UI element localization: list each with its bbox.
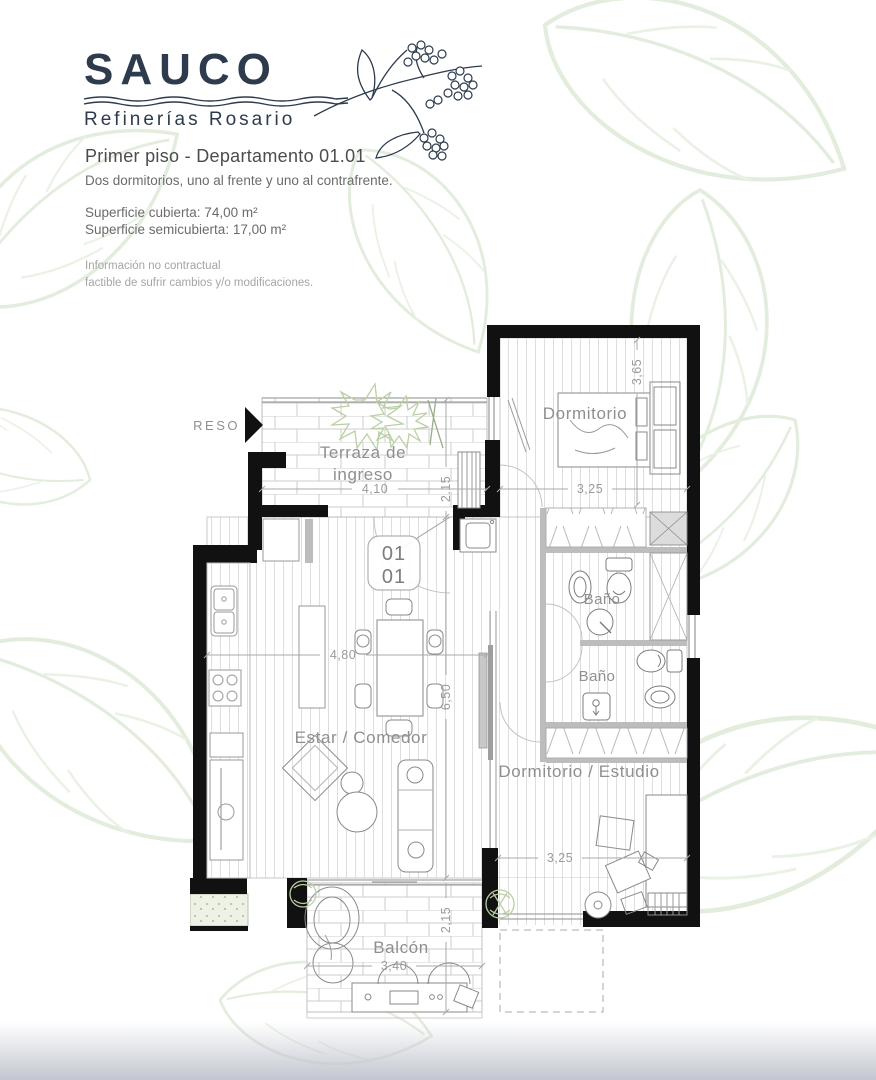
brand-logo: SAUCO Refinerías Rosario: [84, 48, 444, 131]
entry-label: INGRESO: [190, 418, 240, 433]
brochure-page: SAUCO Refinerías Rosario: [0, 0, 876, 1080]
dim-dorm-depth: 3,65: [630, 359, 644, 385]
dim-estar-depth: 6,50: [439, 684, 453, 710]
dim-estar-width: 4,80: [330, 648, 356, 662]
disclaimer-line-2: factible de sufrir cambios y/o modificac…: [85, 275, 313, 292]
unit-badge: 01 01: [368, 536, 420, 590]
entry-marker: INGRESO: [190, 407, 263, 443]
dim-terraza-depth: 2,15: [439, 476, 453, 502]
unit-header: Primer piso - Departamento 01.01 Dos dor…: [85, 146, 393, 188]
dim-terraza-width: 4,10: [362, 482, 388, 496]
dim-dorm2-width: 3,25: [547, 851, 573, 865]
room-label-dormitorio-estudio: Dormitorio / Estudio: [498, 762, 659, 781]
room-label-dormitorio: Dormitorio: [543, 404, 627, 423]
unit-number-top: 01: [382, 543, 406, 565]
surface-semicovered: Superficie semicubierta: 17,00 m²: [85, 222, 286, 237]
room-label-bano-1: Baño: [584, 591, 621, 608]
footer-gradient: [0, 1022, 876, 1080]
surface-info: Superficie cubierta: 74,00 m² Superficie…: [85, 203, 286, 237]
disclaimer-line-1: Información no contractual: [85, 258, 313, 275]
unit-number-bottom: 01: [382, 566, 406, 588]
floor-plan: 4,10 4,80 3,25 3,25 3,40 2,15 6,50 2,15 …: [190, 320, 702, 1020]
dim-balcon-width: 3,40: [381, 959, 407, 973]
surface-covered: Superficie cubierta: 74,00 m²: [85, 205, 286, 220]
dim-balcon-depth: 2,15: [439, 907, 453, 933]
page-title: Primer piso - Departamento 01.01: [85, 146, 393, 167]
room-label-terraza-2: ingreso: [333, 465, 393, 484]
entry-arrow-icon: [245, 407, 263, 443]
room-label-estar-comedor: Estar / Comedor: [295, 728, 428, 747]
disclaimer: Información no contractual factible de s…: [85, 258, 313, 291]
room-label-balcon: Balcón: [373, 938, 429, 957]
dim-dorm-width: 3,25: [577, 482, 603, 496]
unit-description: Dos dormitorios, uno al frente y uno al …: [85, 173, 393, 188]
room-label-terraza-1: Terraza de: [320, 443, 406, 462]
room-label-bano-2: Baño: [579, 668, 616, 685]
elderberry-branch-icon: [312, 38, 492, 163]
logo-wave-lines-icon: [84, 94, 349, 108]
